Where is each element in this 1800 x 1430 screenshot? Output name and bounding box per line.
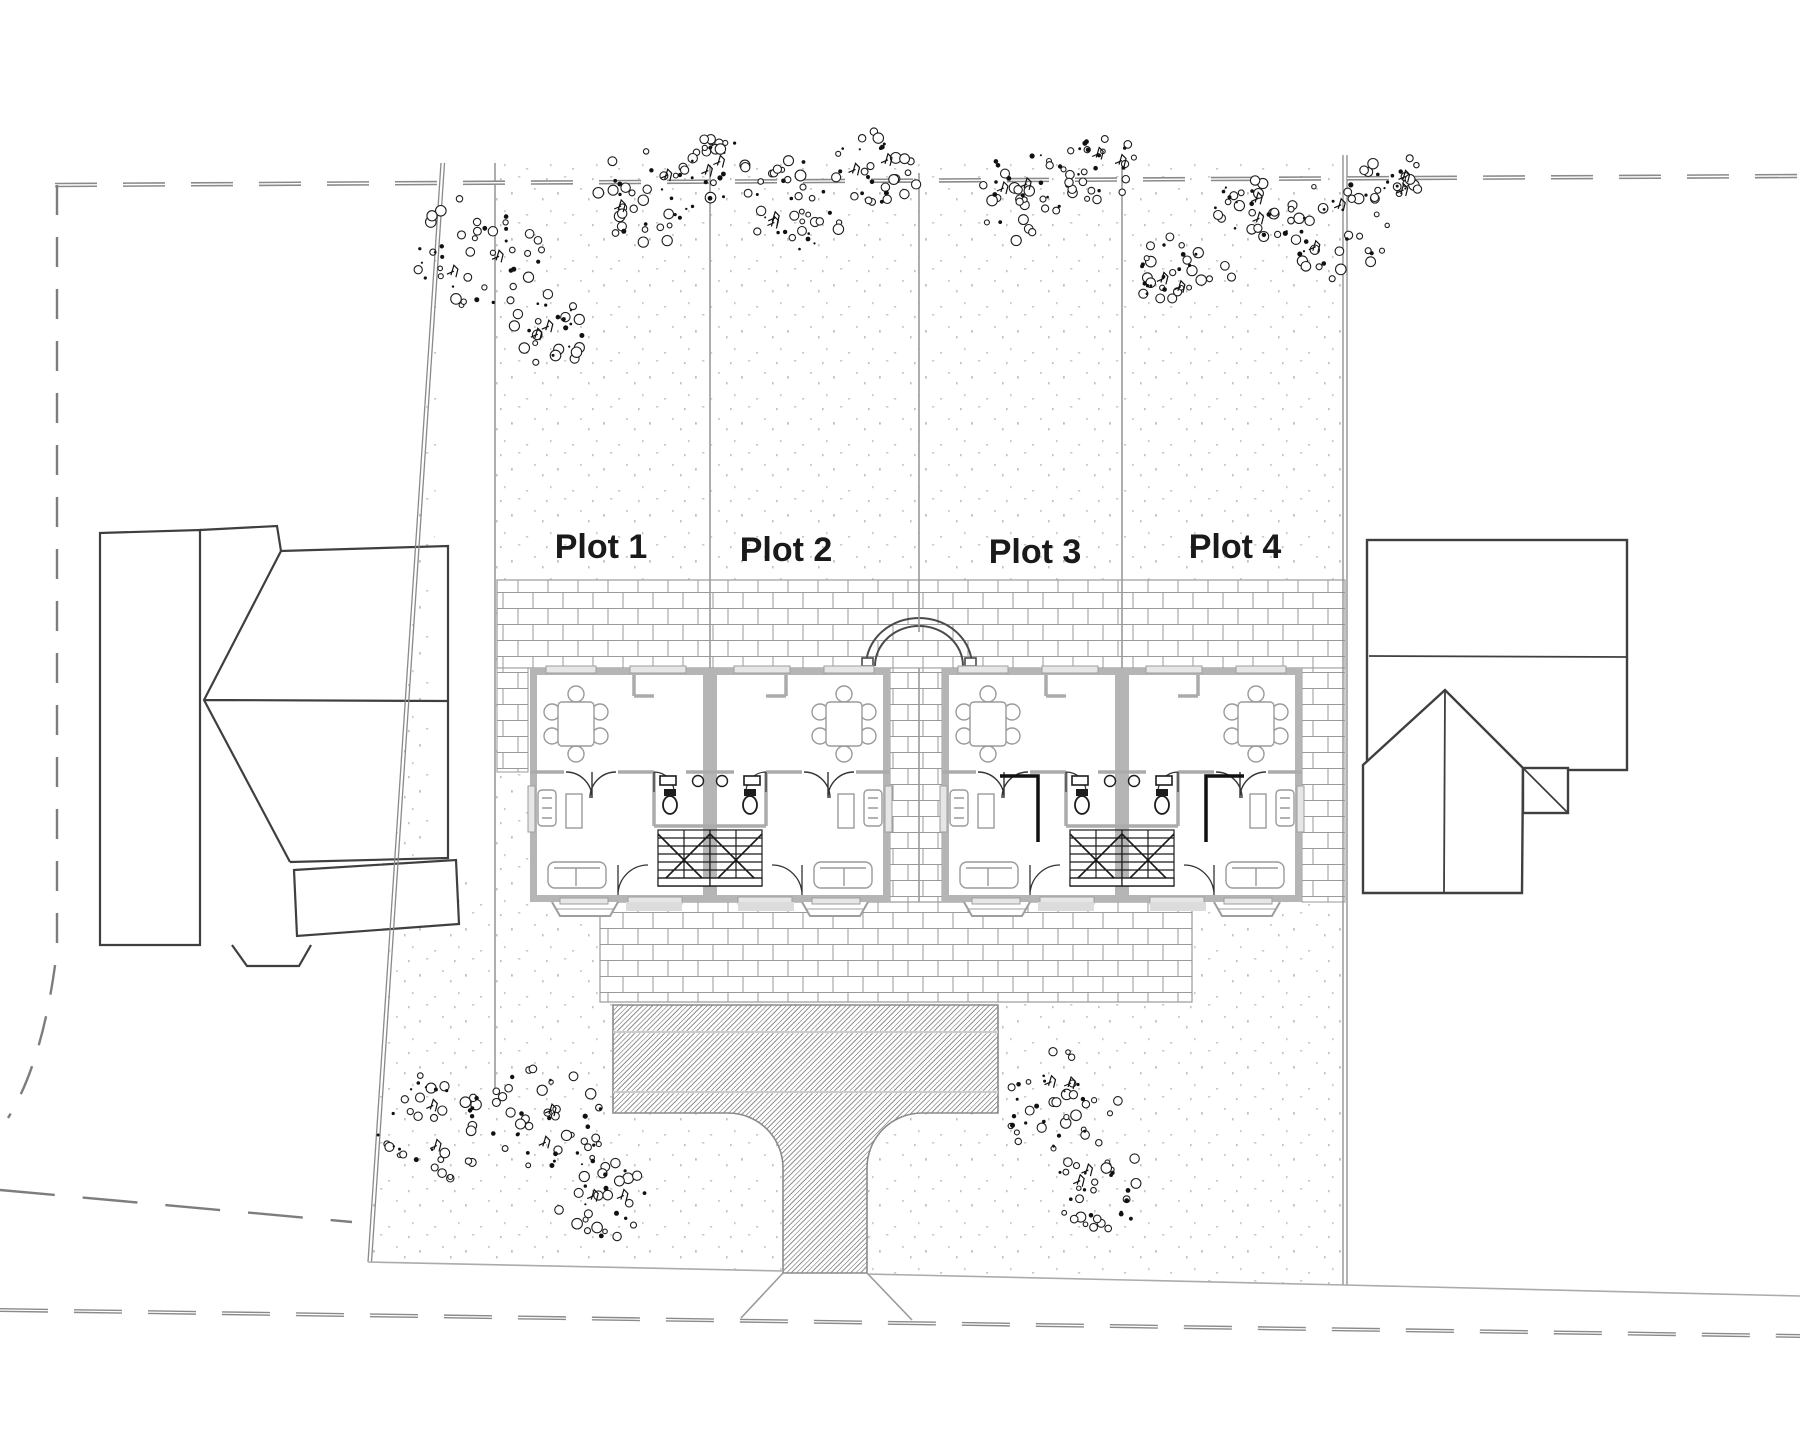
diagonal-boundary-dashed [0, 1190, 352, 1222]
rear-patio [600, 902, 1192, 1002]
existing-house-east [1363, 540, 1627, 893]
site-plan-drawing: Plot 1 Plot 2 Plot 3 Plot 4 [0, 0, 1800, 1430]
plot-label-1: Plot 1 [555, 528, 648, 566]
plot-label-2: Plot 2 [740, 531, 833, 569]
side-path-east [1302, 668, 1345, 902]
side-path-west [497, 668, 528, 772]
rear-path-band [497, 580, 1345, 668]
plot-label-4: Plot 4 [1189, 528, 1282, 566]
plot-label-3: Plot 3 [989, 533, 1082, 571]
central-path [890, 668, 942, 902]
semi-detached-pair-1 [528, 666, 892, 916]
semi-detached-pair-2 [940, 666, 1304, 916]
dropped-kerb-splays [741, 1273, 912, 1320]
west-boundary-dashed [8, 185, 57, 1118]
